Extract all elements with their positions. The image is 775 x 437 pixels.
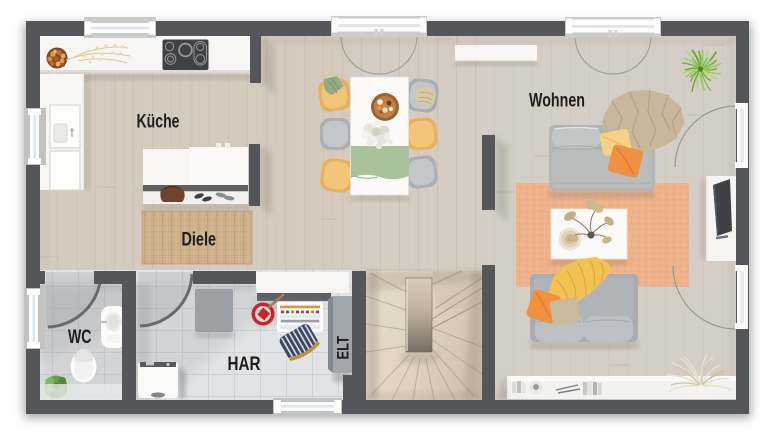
svg-text:Diele: Diele xyxy=(182,229,217,251)
svg-text:WC: WC xyxy=(68,326,92,348)
svg-text:ELT: ELT xyxy=(334,336,353,360)
svg-text:Küche: Küche xyxy=(137,111,180,133)
svg-text:Wohnen: Wohnen xyxy=(529,90,585,112)
svg-text:HAR: HAR xyxy=(228,353,261,375)
